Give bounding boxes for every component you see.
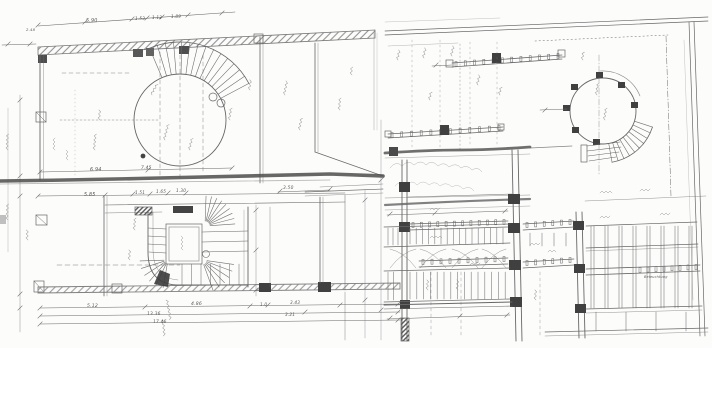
column-mark (508, 223, 520, 233)
column-mark (389, 147, 398, 156)
dimension-annotation: 17.46 (153, 319, 167, 325)
column-mark (399, 182, 410, 192)
dimension-annotation: 1.89 (171, 14, 181, 19)
circle-element (141, 154, 146, 159)
column-mark (38, 55, 47, 63)
dimension-annotation: 1.30 (176, 188, 186, 193)
column-mark (173, 206, 193, 213)
column-mark (399, 222, 410, 232)
column-mark (492, 53, 501, 63)
column-mark (0, 215, 6, 224)
column-mark (259, 283, 271, 292)
dimension-annotation: 5.12 (87, 303, 98, 309)
dimension-annotation: 1.65 (156, 189, 166, 194)
column-mark (318, 282, 331, 292)
dimension-annotation: 1.51 (135, 190, 145, 195)
column-mark (631, 102, 638, 108)
column-mark (596, 72, 603, 78)
dimension-annotation: 1.0 (260, 302, 267, 307)
dimension-annotation: Beleuchtung (644, 275, 668, 279)
column-mark (618, 82, 625, 88)
dimension-annotation: 1.53 (135, 16, 145, 21)
dimension-annotation: 3.21 (285, 312, 295, 317)
dimension-annotation: 7.45 (141, 165, 152, 171)
dimension-annotation: 3.43 (290, 300, 300, 305)
dimension-annotation: 13.36 (147, 311, 161, 317)
column-mark (508, 194, 520, 204)
dimension-annotation: 2.48 (26, 27, 36, 32)
column-mark (571, 84, 578, 90)
column-mark (563, 105, 570, 111)
column-mark (401, 318, 409, 341)
column-mark (440, 125, 449, 135)
dimension-annotation: 4.86 (191, 301, 202, 307)
column-mark (133, 49, 143, 57)
dimension-annotation: 5.90 (86, 18, 97, 24)
column-mark (572, 127, 579, 133)
dimension-annotation: 1.12 (152, 15, 162, 20)
column-mark (573, 221, 584, 230)
column-mark (575, 304, 586, 313)
scanned-blueprint: 5.901.531.121.892.486.947.455.851.511.65… (0, 0, 720, 405)
blueprint-svg: 5.901.531.121.892.486.947.455.851.511.65… (0, 0, 720, 405)
column-mark (135, 207, 152, 215)
dimension-annotation: 6.94 (90, 167, 101, 173)
column-mark (574, 264, 585, 273)
dimension-annotation: 3.50 (283, 185, 294, 191)
column-mark (179, 46, 189, 54)
column-mark (509, 260, 521, 270)
dimension-annotation: 5.85 (84, 192, 95, 198)
